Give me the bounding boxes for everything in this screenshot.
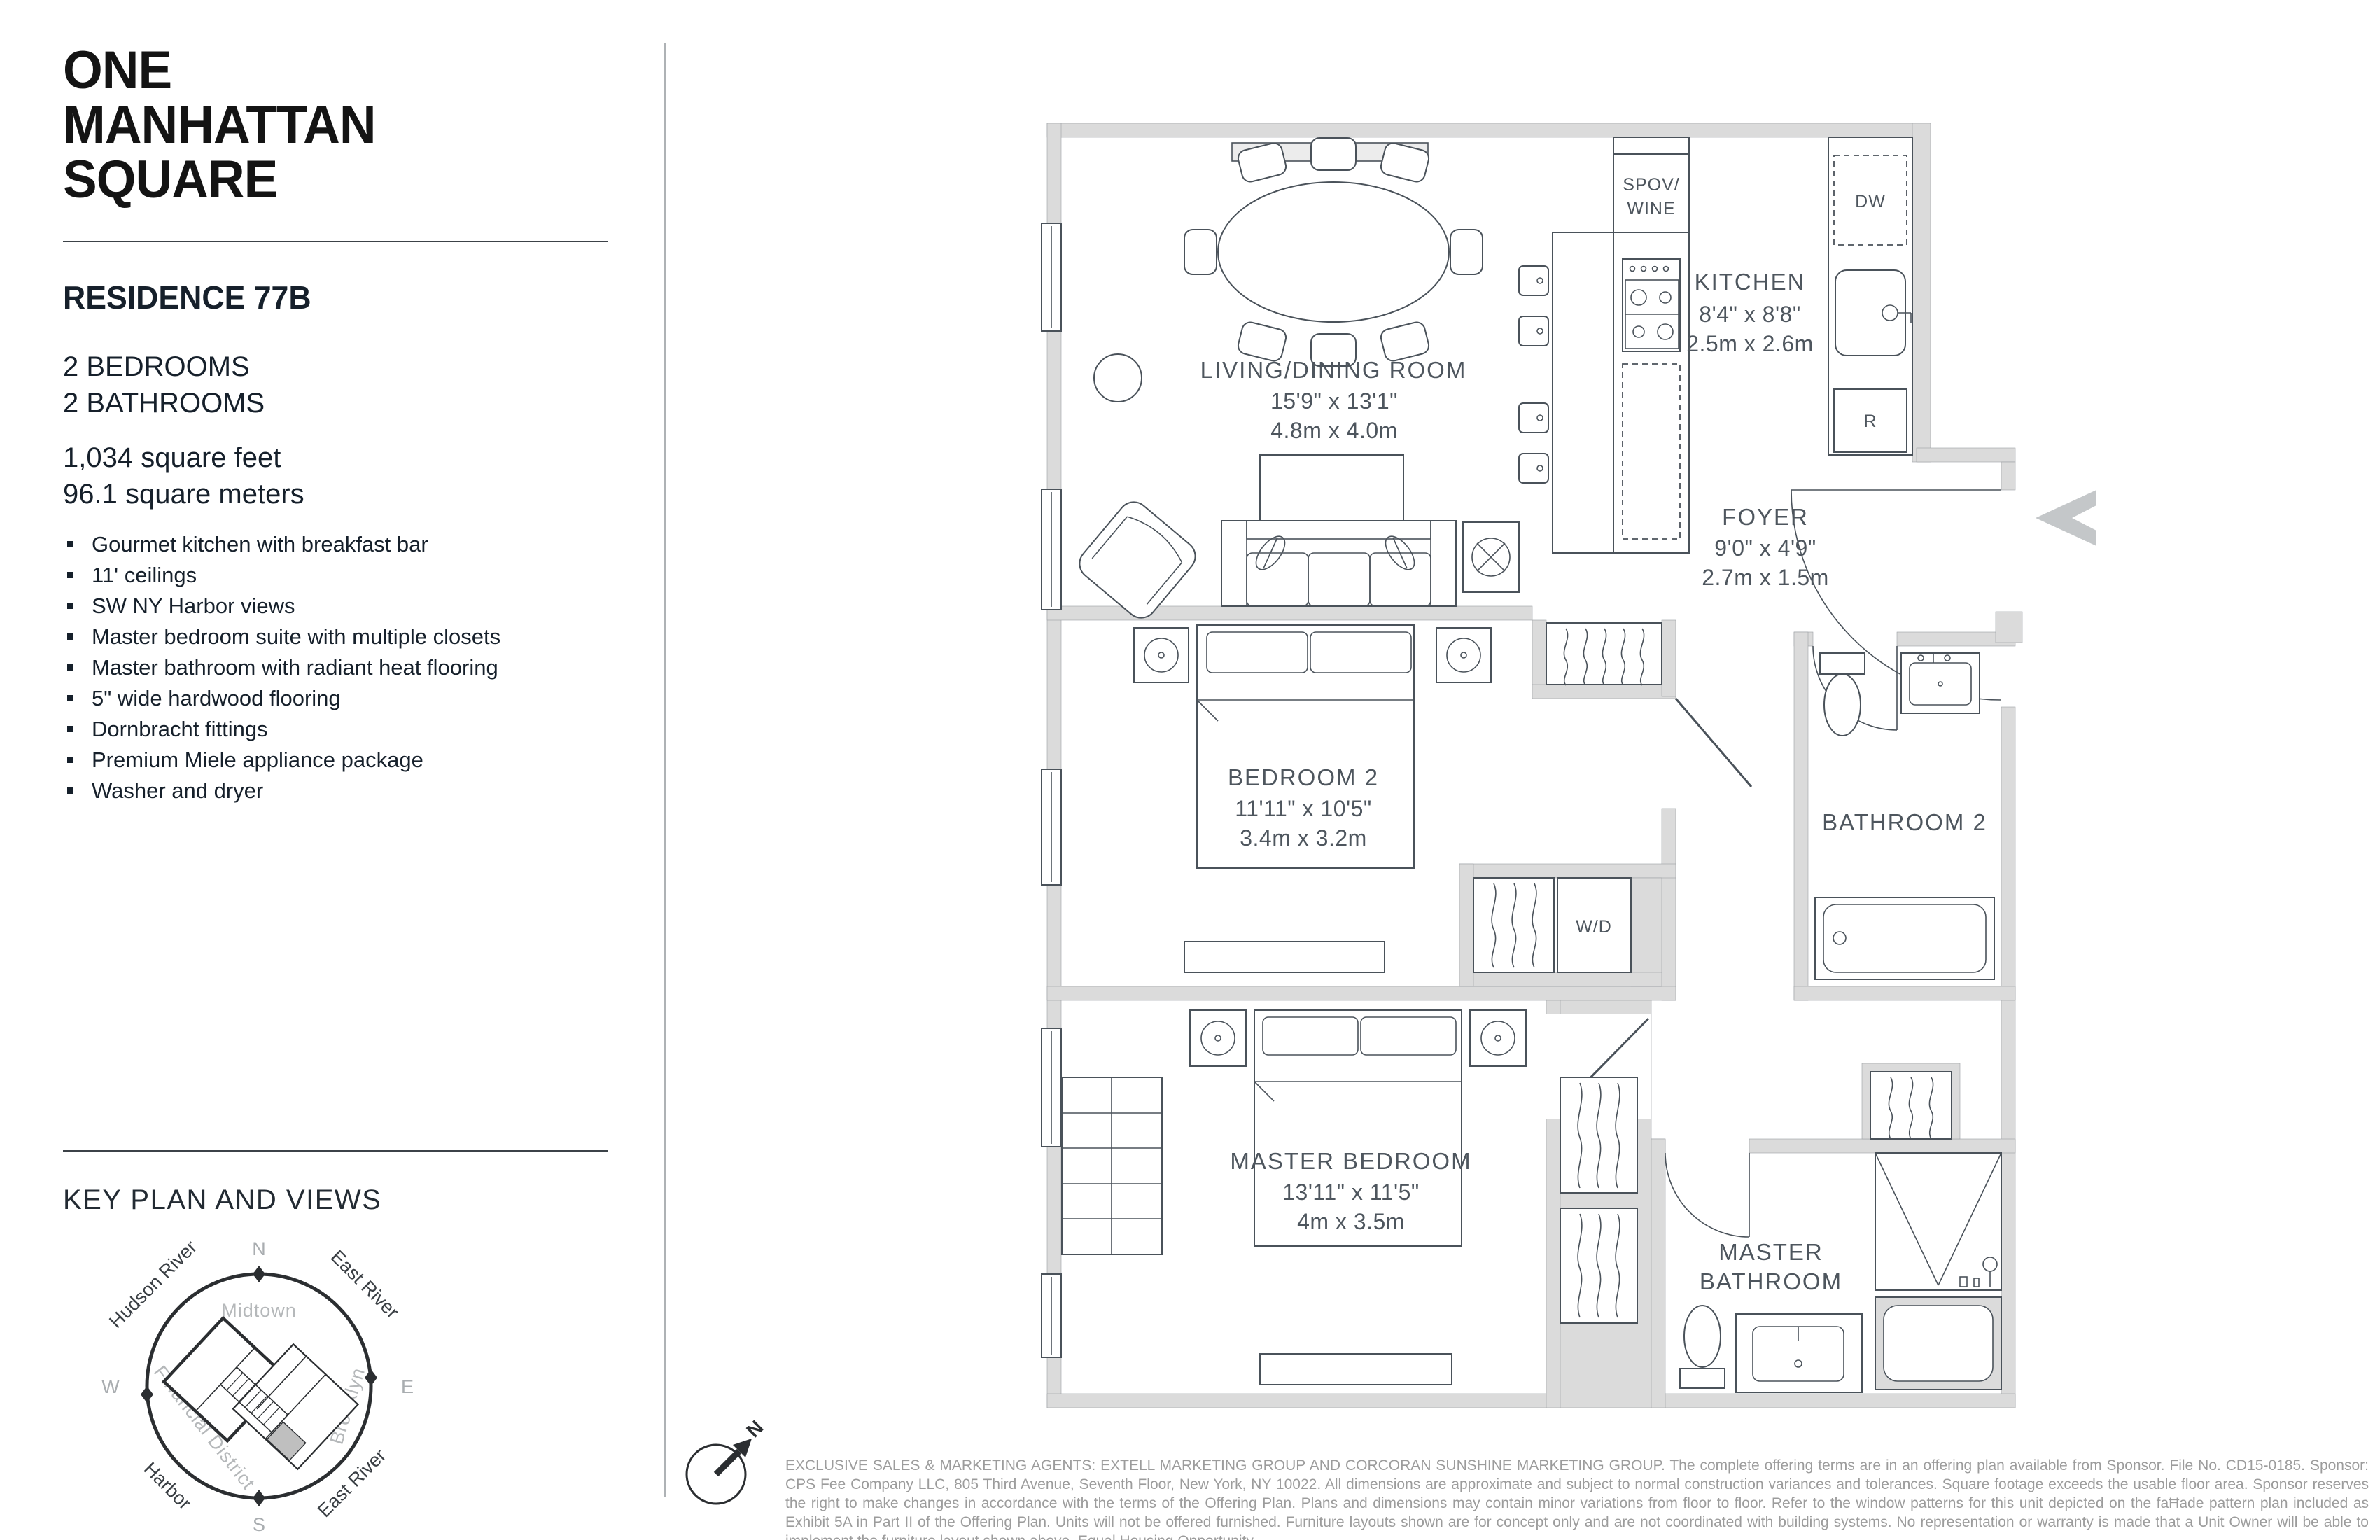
feature-list: Gourmet kitchen with breakfast bar 11' c…: [63, 532, 500, 809]
master-bedroom-dim-imperial: 13'11" x 11'5": [1282, 1179, 1420, 1205]
kitchen-sink: [1835, 270, 1911, 356]
legal-disclaimer: EXCLUSIVE SALES & MARKETING AGENTS: EXTE…: [785, 1456, 2369, 1540]
refrigerator-label: R: [1863, 412, 1877, 431]
window: [1042, 223, 1061, 331]
feature-text: 5" wide hardwood flooring: [92, 686, 341, 711]
feature-text: SW NY Harbor views: [92, 594, 295, 619]
side-table-round: [1094, 354, 1142, 402]
bed-bath-summary: 2 BEDROOMS 2 BATHROOMS: [63, 349, 265, 421]
window: [1042, 1028, 1061, 1147]
list-item: Dornbracht fittings: [63, 717, 500, 748]
living-room-dim-imperial: 15'9" x 13'1": [1270, 388, 1398, 414]
bedroom2-door: [1676, 699, 1751, 787]
bathrooms-count: 2 BATHROOMS: [63, 385, 265, 421]
nightstand: [1134, 628, 1189, 682]
list-item: Master bathroom with radiant heat floori…: [63, 655, 500, 686]
shower: [1875, 1153, 2001, 1290]
coffee-table: [1260, 455, 1403, 521]
dishwasher-label: DW: [1855, 192, 1886, 211]
list-item: Master bedroom suite with multiple close…: [63, 624, 500, 655]
plant-side-table: [1463, 522, 1519, 592]
bathroom-sink: [1901, 653, 1980, 713]
window: [1042, 1274, 1061, 1357]
label-east-river-bottom: East River: [314, 1445, 390, 1521]
nightstand: [1436, 628, 1491, 682]
compass-e: E: [401, 1376, 414, 1397]
bar-stools: [1519, 266, 1548, 483]
nightstand: [1190, 1010, 1246, 1066]
entry-arrow-icon: [2036, 490, 2096, 546]
hanging-closet: [1473, 878, 1554, 972]
feature-text: Master bedroom suite with multiple close…: [92, 624, 500, 650]
building-footprint: [164, 1298, 357, 1489]
master-bathroom-door: [1665, 1153, 1749, 1237]
sofa: [1221, 521, 1456, 606]
breakfast-bar-island: [1553, 232, 1613, 553]
foyer-label: FOYER: [1722, 504, 1809, 530]
range-stove: [1623, 259, 1680, 351]
sidebar: ONE MANHATTAN SQUARE RESIDENCE 77B 2 BED…: [63, 0, 616, 1540]
north-arrow: N: [678, 1420, 776, 1518]
divider-bottom: [63, 1150, 608, 1151]
key-plan-compass: N S W E Hudson River East River Harbor E…: [59, 1221, 465, 1540]
bedroom2-label: BEDROOM 2: [1228, 764, 1379, 790]
window: [1042, 769, 1061, 885]
bullet-icon: [67, 633, 73, 640]
kitchen-dim-metric: 2.5m x 2.6m: [1686, 331, 1814, 356]
bench: [1184, 941, 1385, 972]
foyer-dim-metric: 2.7m x 1.5m: [1702, 565, 1829, 590]
bullet-icon: [67, 695, 73, 701]
bedroom2-dim-imperial: 11'11" x 10'5": [1235, 796, 1372, 821]
label-harbor: Harbor: [140, 1458, 196, 1514]
list-item: 11' ceilings: [63, 563, 500, 594]
kitchen-label: KITCHEN: [1695, 269, 1806, 295]
bullet-icon: [67, 603, 73, 609]
bullet-icon: [67, 572, 73, 578]
feature-text: Master bathroom with radiant heat floori…: [92, 655, 498, 680]
compass-n: N: [252, 1238, 266, 1259]
bathroom2-label: BATHROOM 2: [1822, 809, 1987, 835]
area-summary: 1,034 square feet 96.1 square meters: [63, 440, 304, 512]
bedrooms-count: 2 BEDROOMS: [63, 349, 265, 385]
master-bathroom-label-line2: BATHROOM: [1700, 1268, 1842, 1294]
master-bedroom-label: MASTER BEDROOM: [1230, 1148, 1471, 1174]
floor-plan: LIVING/DINING ROOM 15'9" x 13'1" 4.8m x …: [1022, 105, 2107, 1428]
dining-table: [1184, 138, 1483, 366]
feature-text: Washer and dryer: [92, 778, 263, 804]
bullet-icon: [67, 664, 73, 671]
lounge-chair: [1073, 496, 1201, 624]
label-midtown: Midtown: [221, 1300, 297, 1321]
divider-top: [63, 241, 608, 242]
living-room-dim-metric: 4.8m x 4.0m: [1270, 418, 1398, 443]
closet-grid: [1062, 1077, 1162, 1254]
floorplan-page: ONE MANHATTAN SQUARE RESIDENCE 77B 2 BED…: [0, 0, 2380, 1540]
hanging-closet: [1560, 1077, 1637, 1193]
master-bedroom-dim-metric: 4m x 3.5m: [1297, 1209, 1405, 1234]
foyer-dim-imperial: 9'0" x 4'9": [1714, 535, 1816, 561]
spov-wine-label-line2: WINE: [1627, 199, 1675, 218]
list-item: Gourmet kitchen with breakfast bar: [63, 532, 500, 563]
area-square-feet: 1,034 square feet: [63, 440, 304, 476]
brand-line-3: SQUARE: [63, 153, 376, 207]
feature-text: Gourmet kitchen with breakfast bar: [92, 532, 428, 557]
nightstand: [1470, 1010, 1526, 1066]
hall-closet: [1546, 623, 1662, 685]
list-item: 5" wide hardwood flooring: [63, 686, 500, 717]
brand-logo: ONE MANHATTAN SQUARE: [63, 43, 376, 207]
brand-line-2: MANHATTAN: [63, 98, 376, 153]
list-item: Premium Miele appliance package: [63, 748, 500, 778]
master-bathroom-label-line1: MASTER: [1718, 1239, 1823, 1265]
key-plan-title: KEY PLAN AND VIEWS: [63, 1184, 381, 1216]
residence-title: RESIDENCE 77B: [63, 279, 311, 316]
label-hudson-river: Hudson River: [105, 1236, 201, 1332]
area-square-meters: 96.1 square meters: [63, 476, 304, 512]
master-bathtub: [1875, 1297, 2001, 1389]
living-room-label: LIVING/DINING ROOM: [1200, 357, 1467, 383]
toilet: [1680, 1305, 1725, 1388]
feature-text: Dornbracht fittings: [92, 717, 268, 742]
linen-closet: [1870, 1072, 1952, 1139]
brand-line-1: ONE: [63, 43, 376, 98]
bench: [1260, 1354, 1452, 1385]
bullet-icon: [67, 757, 73, 763]
feature-text: Premium Miele appliance package: [92, 748, 423, 773]
toilet: [1820, 653, 1865, 736]
hanging-closet: [1560, 1208, 1637, 1323]
list-item: SW NY Harbor views: [63, 594, 500, 624]
kitchen-counter-dashed: [1623, 364, 1680, 539]
north-letter: N: [742, 1420, 767, 1441]
compass-s: S: [253, 1514, 265, 1535]
vanity-sink: [1736, 1314, 1862, 1392]
washer-dryer-label: W/D: [1576, 917, 1612, 937]
spov-wine-label-line1: SPOV/: [1623, 175, 1679, 195]
bedroom2-dim-metric: 3.4m x 3.2m: [1240, 825, 1367, 850]
bullet-icon: [67, 541, 73, 547]
feature-text: 11' ceilings: [92, 563, 197, 588]
vertical-divider: [664, 43, 666, 1497]
bathtub: [1815, 897, 1994, 979]
window: [1042, 489, 1061, 610]
label-east-river-top: East River: [327, 1246, 403, 1322]
compass-w: W: [101, 1376, 120, 1397]
bullet-icon: [67, 787, 73, 794]
list-item: Washer and dryer: [63, 778, 500, 809]
bullet-icon: [67, 726, 73, 732]
kitchen-dim-imperial: 8'4" x 8'8": [1699, 302, 1800, 327]
